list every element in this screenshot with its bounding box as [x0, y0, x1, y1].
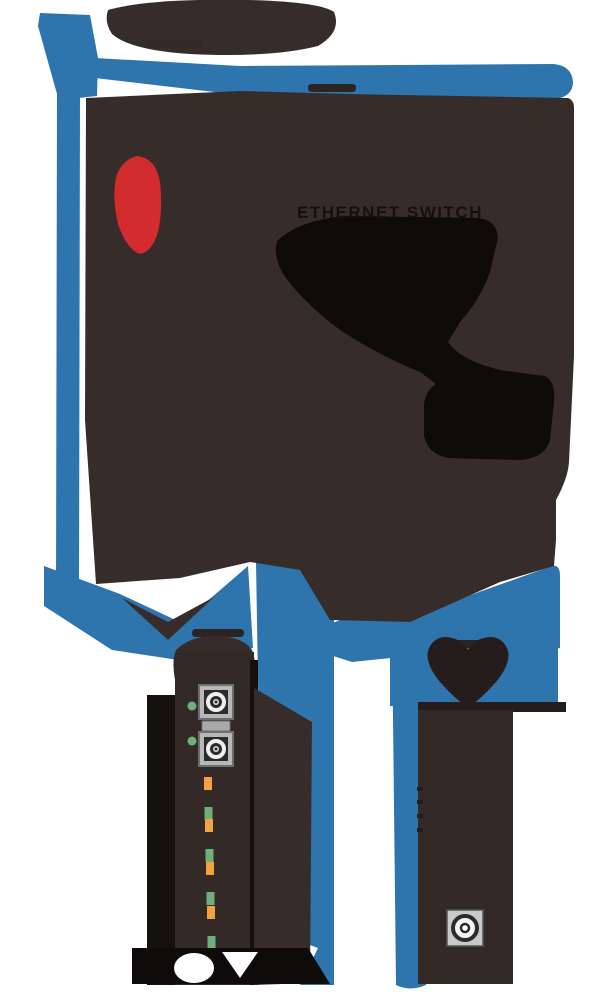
foot-cutout-left — [174, 953, 214, 983]
status-led-2-green — [205, 807, 213, 820]
front-panel-side-shadow — [254, 688, 312, 985]
status-led-3-orange — [205, 819, 213, 832]
diagram-artwork: ETHERNET SWITCH — [0, 0, 610, 1000]
silhouette-label-marks — [448, 446, 532, 454]
status-led-1-orange — [204, 777, 212, 790]
port-led-1 — [188, 702, 197, 711]
edge-mark — [417, 828, 423, 832]
dimension-diagram-canvas: ETHERNET SWITCH — [0, 0, 610, 1000]
dimension-label-marks-bottomleft — [192, 629, 244, 637]
fiber-port-2 — [199, 732, 233, 766]
device-body-shapes — [85, 0, 574, 648]
dimension-label-marks-top — [308, 84, 356, 92]
product-label: ETHERNET SWITCH — [297, 203, 483, 222]
edge-mark — [417, 800, 423, 804]
fiber-port-1-core — [215, 701, 218, 704]
port-separator-bar — [202, 721, 230, 731]
fiber-port-2-core — [215, 748, 218, 751]
dc-power-jack — [447, 910, 483, 946]
dc-jack-pin — [461, 924, 469, 932]
edge-mark — [417, 787, 423, 791]
height-dimension-column-left — [56, 92, 80, 596]
fiber-port-1 — [199, 685, 233, 719]
status-led-6-green — [207, 892, 215, 905]
front-panel-left-edge — [147, 695, 175, 985]
status-led-8-green — [208, 936, 216, 949]
port-led-2 — [188, 737, 197, 746]
status-led-4-green — [206, 849, 214, 862]
edge-mark — [417, 814, 423, 818]
dimension-label-marks-topleft — [146, 40, 202, 48]
width-dimension-band — [95, 58, 573, 99]
status-led-7-orange — [207, 906, 215, 919]
top-annotation-cloud — [107, 0, 336, 55]
status-led-5-orange — [206, 862, 214, 875]
device-top-view-mass — [85, 91, 574, 622]
width-dimension-funnel — [38, 13, 98, 98]
